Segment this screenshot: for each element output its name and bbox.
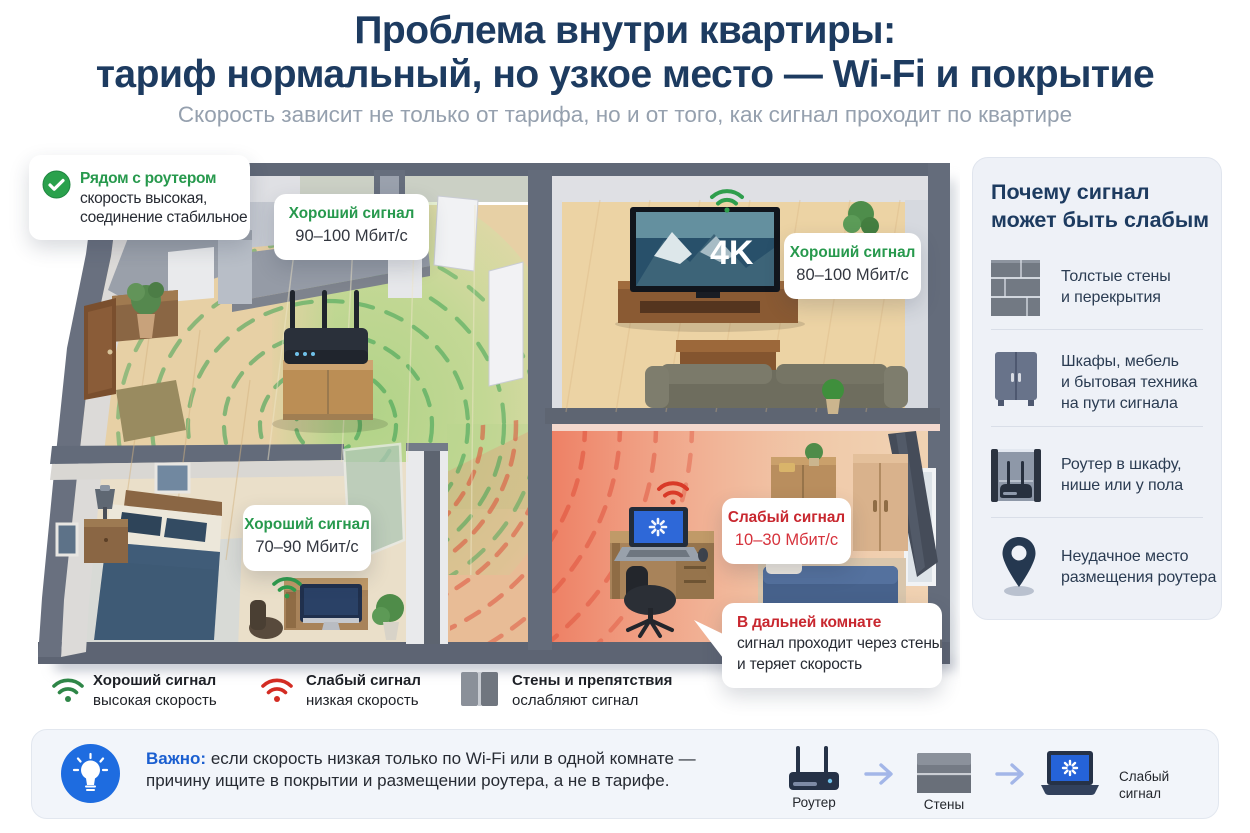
svg-text:4K: 4K (710, 234, 754, 272)
